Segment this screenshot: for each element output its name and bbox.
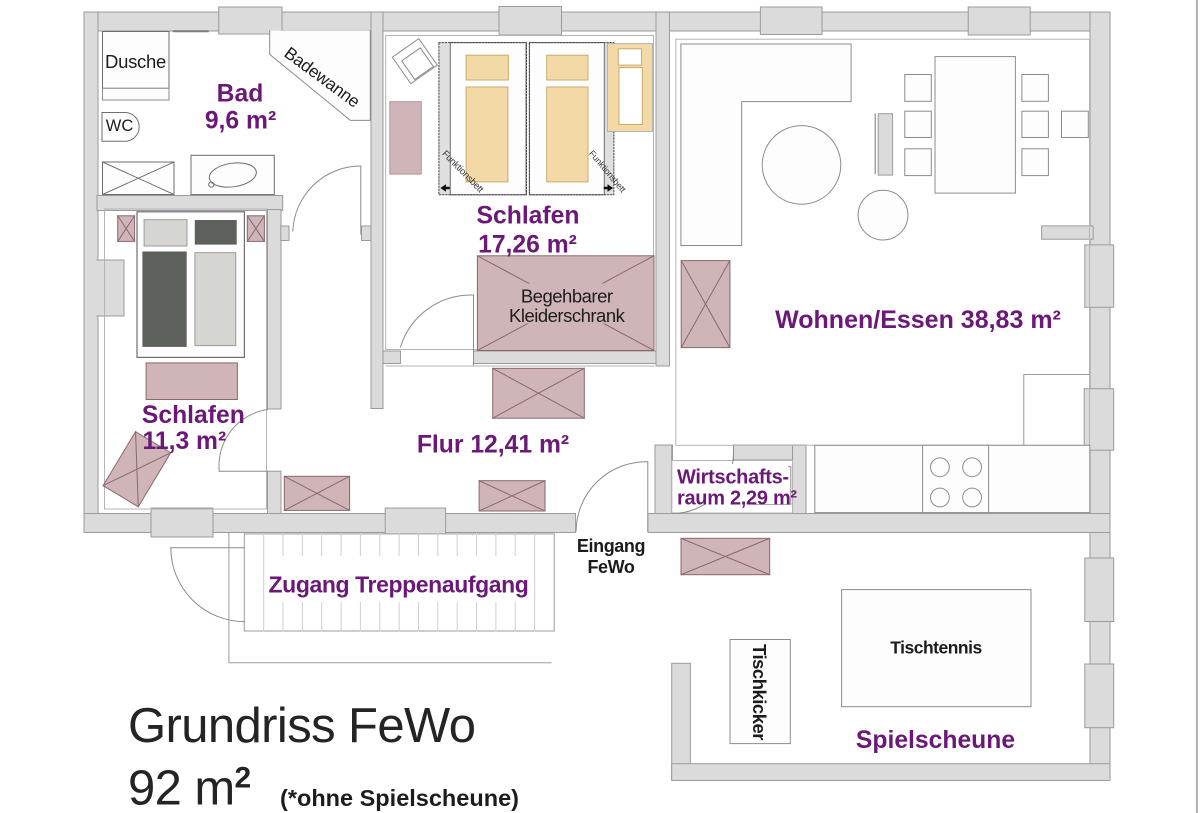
svg-text:Tischkicker: Tischkicker: [749, 644, 770, 740]
svg-text:Wohnen/Essen 38,83 m²: Wohnen/Essen 38,83 m²: [775, 306, 1061, 334]
svg-text:Zugang Treppenaufgang: Zugang Treppenaufgang: [269, 572, 529, 598]
svg-text:FeWo: FeWo: [587, 557, 634, 577]
svg-text:Wirtschafts-: Wirtschafts-: [677, 467, 789, 489]
svg-text:WC: WC: [106, 117, 134, 135]
svg-text:Spielscheune: Spielscheune: [856, 727, 1015, 754]
svg-text:Kleiderschrank: Kleiderschrank: [509, 305, 626, 326]
svg-text:Schlafen: Schlafen: [477, 202, 580, 229]
svg-text:9,6 m²: 9,6 m²: [205, 108, 276, 135]
svg-text:17,26 m²: 17,26 m²: [478, 232, 577, 259]
svg-text:Begehbarer: Begehbarer: [521, 286, 613, 307]
svg-text:Tischtennis: Tischtennis: [890, 638, 982, 658]
svg-text:Eingang: Eingang: [577, 536, 645, 556]
svg-text:Flur 12,41 m²: Flur 12,41 m²: [417, 432, 569, 459]
svg-text:11,3 m²: 11,3 m²: [143, 428, 227, 455]
svg-text:Schlafen: Schlafen: [142, 402, 245, 429]
svg-text:92 m2: 92 m2: [128, 762, 251, 813]
svg-text:Bad: Bad: [217, 81, 264, 108]
svg-text:(*ohne Spielscheune): (*ohne Spielscheune): [280, 785, 519, 811]
svg-text:Dusche: Dusche: [105, 51, 166, 72]
svg-text:Grundriss FeWo: Grundriss FeWo: [128, 699, 475, 753]
svg-text:raum 2,29 m²: raum 2,29 m²: [677, 488, 797, 510]
